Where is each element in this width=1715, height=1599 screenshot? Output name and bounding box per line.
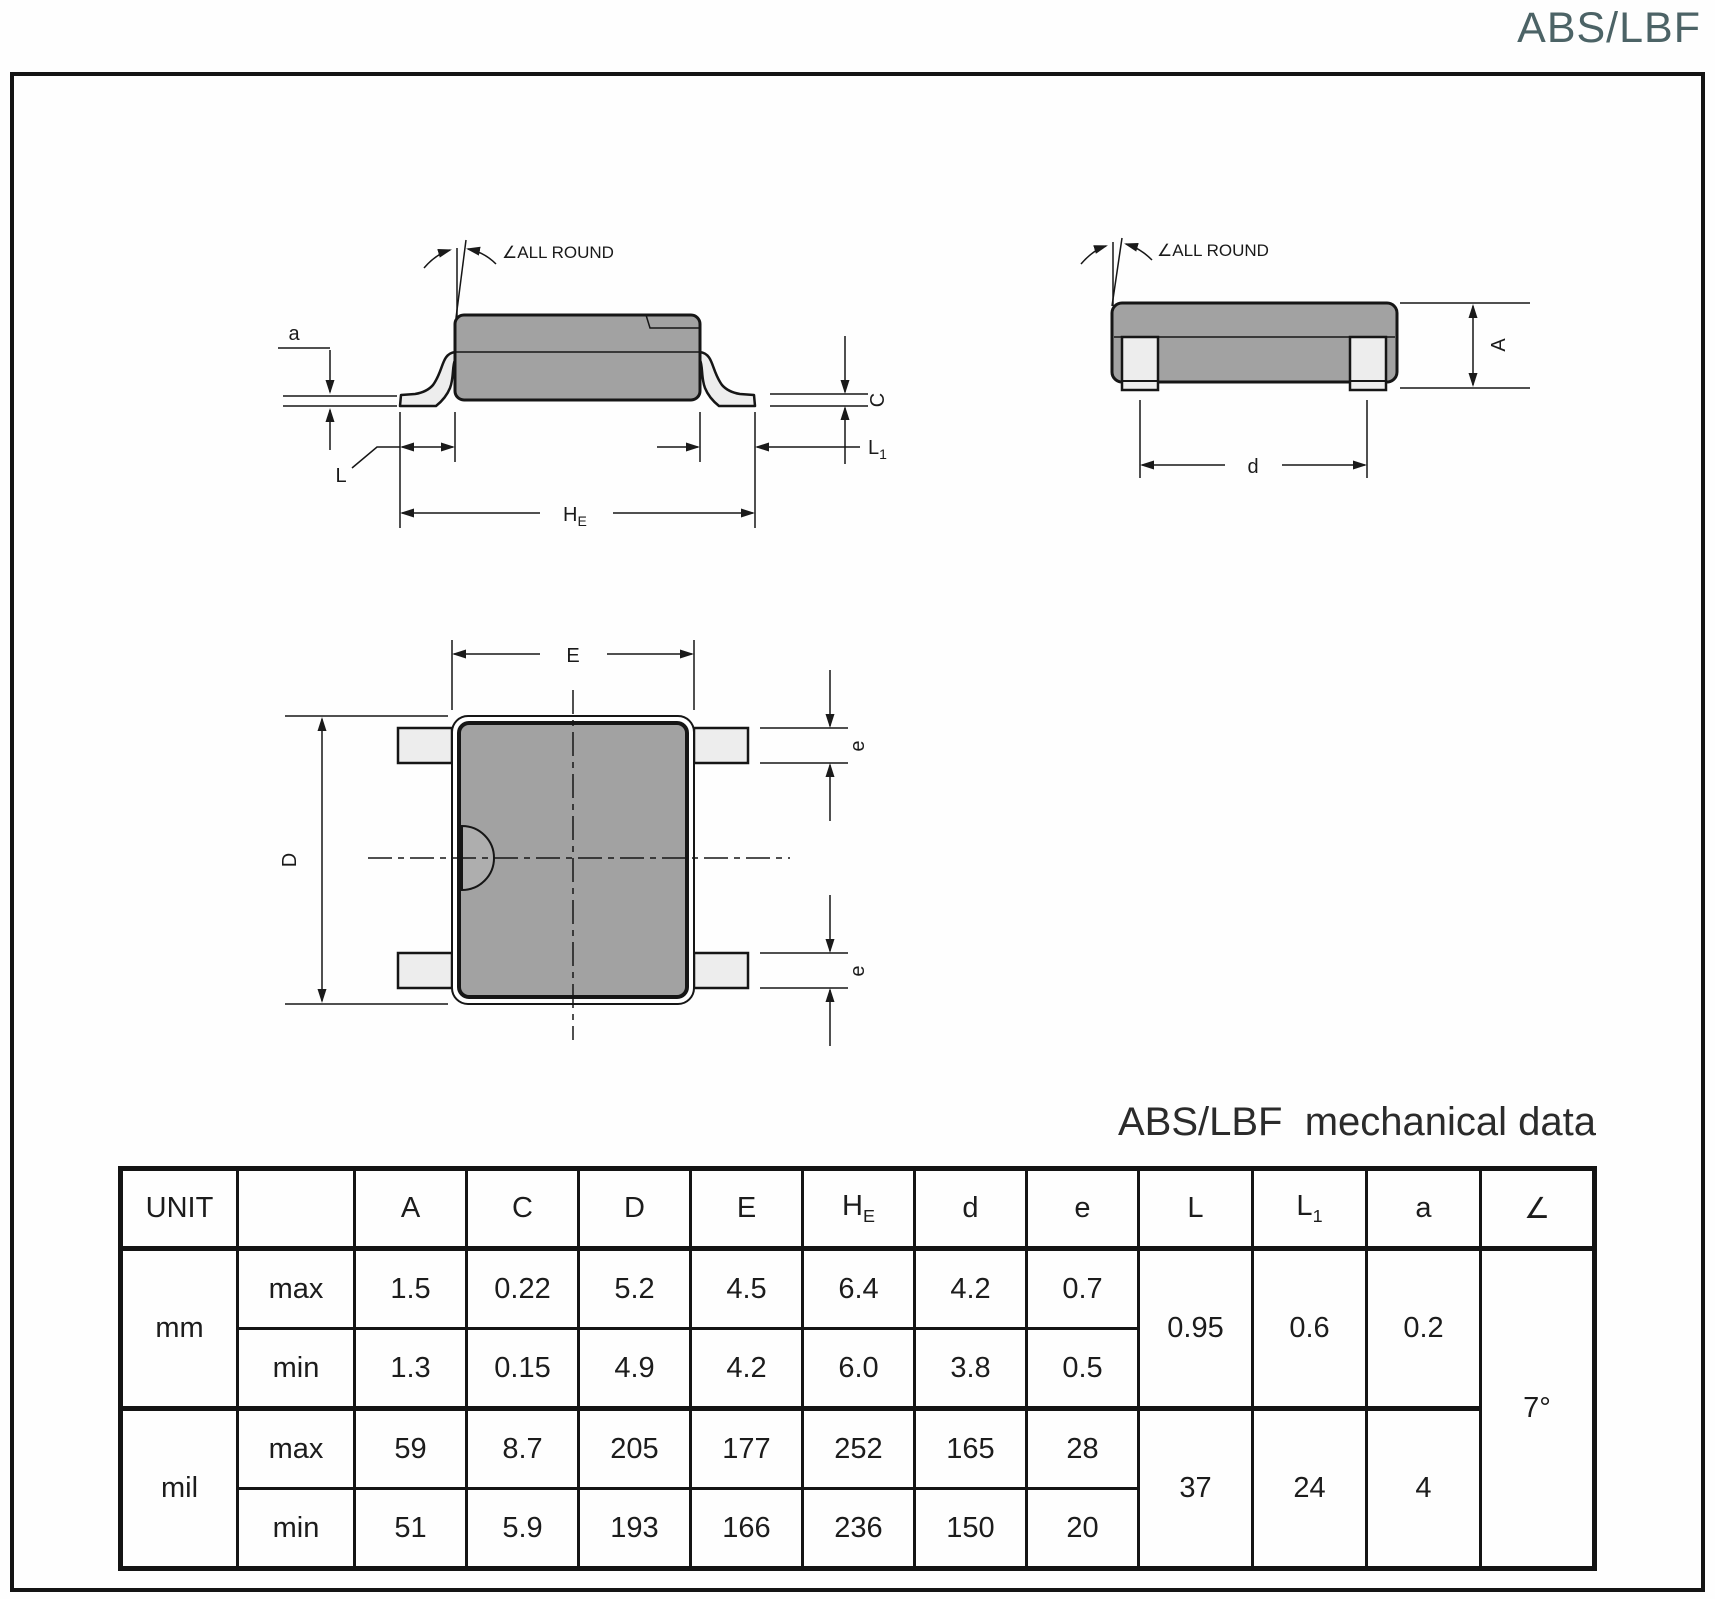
limit-label-mm-min: min: [238, 1329, 355, 1409]
col-header-a-small: a: [1367, 1169, 1481, 1249]
side-view-dim-a-label: a: [288, 323, 300, 345]
cell-mil-a: 4: [1367, 1409, 1481, 1569]
limit-label-mil-max: max: [238, 1409, 355, 1489]
col-header-A: A: [355, 1169, 467, 1249]
side-view: ∠ALL ROUND a L L1: [278, 240, 889, 529]
side-view-right-lead: [700, 352, 755, 406]
end-view-dim-d-label: d: [1247, 456, 1258, 478]
row-mil-max: mil max 59 8.7 205 177 252 165 28 37 24 …: [121, 1409, 1595, 1489]
cell-mil-min-E: 166: [691, 1489, 803, 1569]
cell-mil-max-A: 59: [355, 1409, 467, 1489]
datasheet-page: { "page": { "doc_code": "ABS/LBF", "tabl…: [0, 0, 1715, 1599]
cell-mm-max-e: 0.7: [1027, 1249, 1139, 1329]
cell-mm-min-e: 0.5: [1027, 1329, 1139, 1409]
side-view-dim-a: [278, 348, 397, 450]
col-header-E: E: [691, 1169, 803, 1249]
cell-mil-max-D: 205: [579, 1409, 691, 1489]
cell-mil-min-D: 193: [579, 1489, 691, 1569]
top-view-lead-top-left: [398, 728, 452, 763]
side-view-left-lead: [400, 352, 455, 406]
top-view-dim-e-lead-bottom: [760, 895, 848, 1046]
unit-label-mm: mm: [121, 1249, 238, 1409]
side-view-dim-l: [352, 447, 453, 468]
cell-mil-min-C: 5.9: [467, 1489, 579, 1569]
cell-mm-min-HE: 6.0: [803, 1329, 915, 1409]
cell-mm-min-E: 4.2: [691, 1329, 803, 1409]
top-view-dim-e-lead-top: [760, 670, 848, 821]
cell-mil-min-HE: 236: [803, 1489, 915, 1569]
col-header-blank: [238, 1169, 355, 1249]
cell-mil-max-HE: 252: [803, 1409, 915, 1489]
side-view-dim-l1-label: L1: [868, 437, 887, 462]
cell-mil-L: 37: [1139, 1409, 1253, 1569]
top-view-dim-d-label: D: [279, 853, 301, 867]
col-header-L1: L1: [1253, 1169, 1367, 1249]
side-view-draft-angle: [424, 240, 496, 318]
cell-mil-max-E: 177: [691, 1409, 803, 1489]
table-header-row: UNIT A C D E HE d e L L1 a ∠: [121, 1169, 1595, 1249]
side-view-all-round-label: ∠ALL ROUND: [502, 243, 614, 262]
cell-mil-min-A: 51: [355, 1489, 467, 1569]
end-view-dim-a-label: A: [1488, 338, 1510, 352]
top-view-lead-bottom-left: [398, 953, 452, 988]
top-view-lead-bottom-right: [694, 953, 748, 988]
cell-mm-max-A: 1.5: [355, 1249, 467, 1329]
side-view-dim-he-label: HE: [563, 504, 587, 529]
cell-mm-min-A: 1.3: [355, 1329, 467, 1409]
row-mm-max: mm max 1.5 0.22 5.2 4.5 6.4 4.2 0.7 0.95…: [121, 1249, 1595, 1329]
side-view-dim-l-label: L: [335, 465, 346, 487]
col-header-L: L: [1139, 1169, 1253, 1249]
col-header-C: C: [467, 1169, 579, 1249]
col-header-HE: HE: [803, 1169, 915, 1249]
cell-mm-L1: 0.6: [1253, 1249, 1367, 1409]
cell-mil-max-C: 8.7: [467, 1409, 579, 1489]
side-view-extension-lines: [400, 412, 755, 528]
cell-mm-min-d: 3.8: [915, 1329, 1027, 1409]
top-view-dim-e-lead-top-label: e: [847, 740, 869, 751]
cell-mm-max-C: 0.22: [467, 1249, 579, 1329]
end-view-draft-angle: [1081, 238, 1152, 306]
table-title: ABS/LBF mechanical data: [0, 1100, 1596, 1145]
end-view-all-round-label: ∠ALL ROUND: [1157, 241, 1269, 260]
cell-angle-value: 7°: [1481, 1249, 1595, 1569]
cell-mm-min-D: 4.9: [579, 1329, 691, 1409]
unit-label-mil: mil: [121, 1409, 238, 1569]
top-view-dim-e-lead-bottom-label: e: [847, 965, 869, 976]
cell-mm-max-E: 4.5: [691, 1249, 803, 1329]
limit-label-mil-min: min: [238, 1489, 355, 1569]
cell-mm-max-d: 4.2: [915, 1249, 1027, 1329]
cell-mm-max-D: 5.2: [579, 1249, 691, 1329]
cell-mm-max-HE: 6.4: [803, 1249, 915, 1329]
col-header-angle: ∠: [1481, 1169, 1595, 1249]
col-header-d: d: [915, 1169, 1027, 1249]
top-view-dim-e-label: E: [566, 645, 579, 667]
cell-mm-min-C: 0.15: [467, 1329, 579, 1409]
col-header-D: D: [579, 1169, 691, 1249]
top-view-lead-top-right: [694, 728, 748, 763]
cell-mil-max-d: 165: [915, 1409, 1027, 1489]
cell-mil-max-e: 28: [1027, 1409, 1139, 1489]
cell-mil-L1: 24: [1253, 1409, 1367, 1569]
mechanical-data-table: UNIT A C D E HE d e L L1 a ∠ mm max 1.5 …: [118, 1166, 1597, 1571]
cell-mil-min-d: 150: [915, 1489, 1027, 1569]
end-view: ∠ALL ROUND A d: [1081, 238, 1530, 478]
side-view-dim-c-label: C: [867, 393, 889, 407]
col-header-e: e: [1027, 1169, 1139, 1249]
cell-mil-min-e: 20: [1027, 1489, 1139, 1569]
limit-label-mm-max: max: [238, 1249, 355, 1329]
end-view-left-pad: [1122, 337, 1158, 390]
cell-mm-L: 0.95: [1139, 1249, 1253, 1409]
end-view-dim-a: [1400, 303, 1530, 388]
end-view-right-pad: [1350, 337, 1386, 390]
top-view: E D e e: [279, 640, 869, 1046]
side-view-dim-c: [770, 336, 868, 464]
cell-mm-a: 0.2: [1367, 1249, 1481, 1409]
col-header-unit: UNIT: [121, 1169, 238, 1249]
